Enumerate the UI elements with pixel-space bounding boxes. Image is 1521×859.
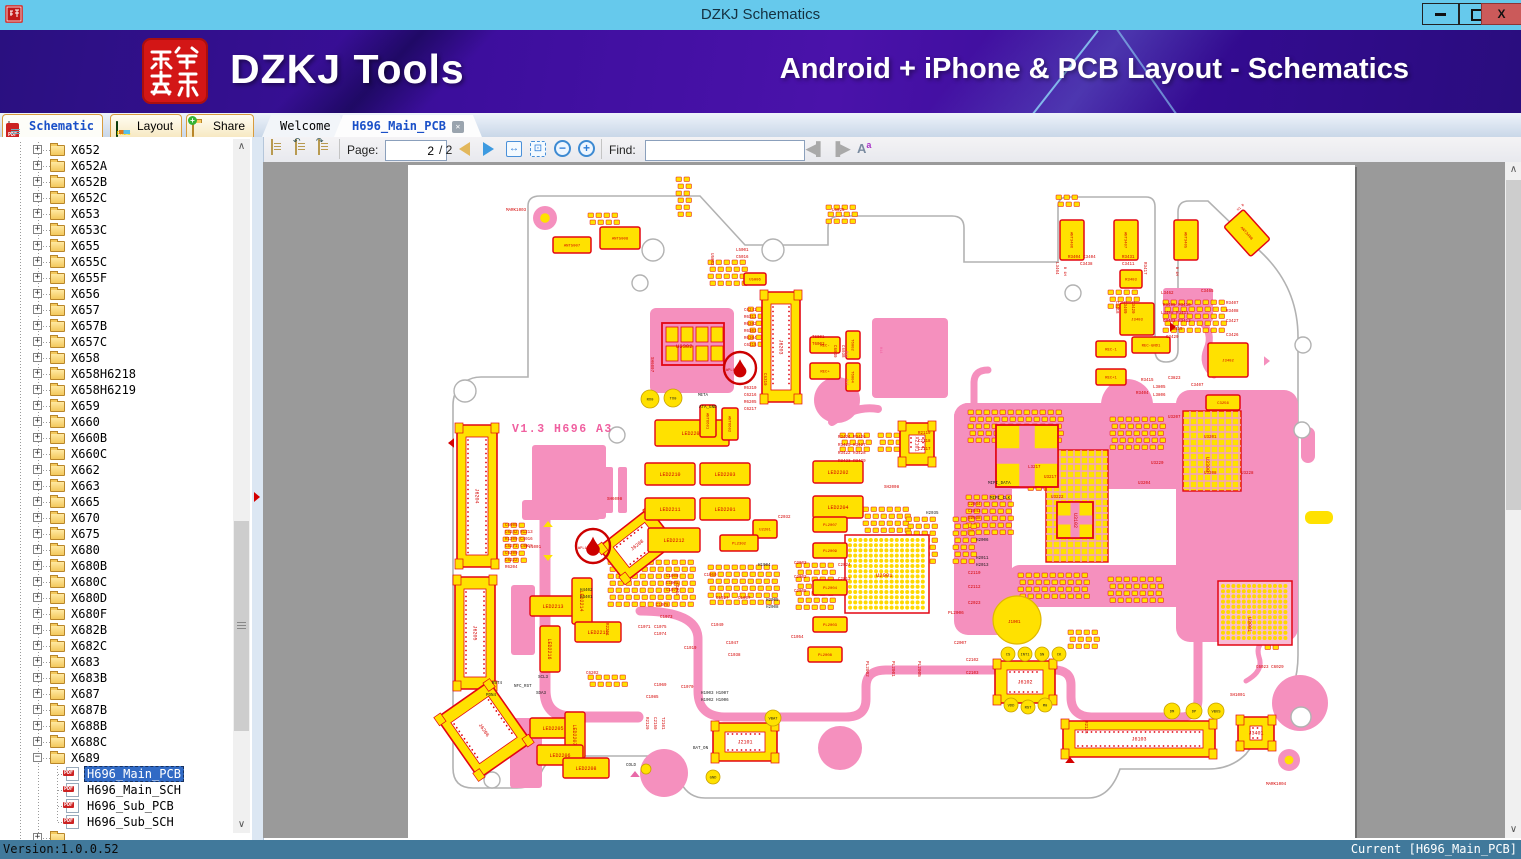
svg-text:U2001: U2001 xyxy=(876,572,893,579)
svg-text:MARK1003: MARK1003 xyxy=(506,209,527,213)
folder-icon xyxy=(50,305,65,316)
sidebar-scrollbar-thumb[interactable] xyxy=(234,521,249,731)
svg-text:INT1: INT1 xyxy=(1020,654,1030,658)
expand-icon[interactable]: + xyxy=(33,273,42,282)
expand-icon[interactable]: + xyxy=(33,241,42,250)
svg-text:MIPI_DATA: MIPI_DATA xyxy=(988,482,1011,486)
expand-icon[interactable]: + xyxy=(33,145,42,154)
svg-text:U3001: U3001 xyxy=(1246,617,1252,632)
svg-text:U5002: U5002 xyxy=(709,253,713,266)
svg-text:C2112: C2112 xyxy=(968,586,981,590)
doc-tab-h696-main-pcb[interactable]: H696_Main_PCB✕ xyxy=(334,115,482,137)
tree-folder-X680C[interactable]: +X680C xyxy=(0,574,232,590)
folder-icon xyxy=(50,609,65,620)
expand-icon[interactable]: + xyxy=(33,833,42,840)
expand-icon[interactable]: + xyxy=(33,513,42,522)
svg-text:CK: CK xyxy=(1057,654,1062,658)
tree-item-label: X670 xyxy=(68,511,103,525)
copy-page-button[interactable] xyxy=(271,140,273,154)
svg-text:H1003 H1007: H1003 H1007 xyxy=(701,692,729,696)
expand-icon[interactable]: + xyxy=(33,177,42,186)
tree-folder-partial[interactable]: + xyxy=(0,830,232,840)
svg-text:R6311: R6311 xyxy=(744,316,757,320)
svg-text:ANT6601: ANT6601 xyxy=(705,413,709,430)
tree-folder-X653C[interactable]: +X653C xyxy=(0,222,232,238)
tree-item-label: X680F xyxy=(68,607,110,621)
tree-folder-X656[interactable]: +X656 xyxy=(0,286,232,302)
folder-icon xyxy=(50,385,65,396)
tab-share[interactable]: Share xyxy=(186,114,254,137)
svg-text:ANT3405: ANT3405 xyxy=(1183,232,1187,249)
expand-icon[interactable]: + xyxy=(33,737,42,746)
page-number-input[interactable] xyxy=(385,140,447,161)
svg-text:C3420: C3420 xyxy=(1130,301,1134,314)
tree-item-label: X655C xyxy=(68,255,110,269)
tree-item-label: X683 xyxy=(68,655,103,669)
expand-icon[interactable]: + xyxy=(33,625,42,634)
svg-text:C2002: C2002 xyxy=(794,576,807,580)
folder-icon xyxy=(50,449,65,460)
svg-text:B 1H: B 1H xyxy=(1062,267,1066,276)
svg-text:C2003: C2003 xyxy=(794,562,807,566)
svg-text:C6023 C6029: C6023 C6029 xyxy=(1256,666,1284,670)
expand-icon[interactable]: + xyxy=(33,353,42,362)
svg-text:C2013: C2013 xyxy=(838,578,851,582)
svg-text:C3407: C3407 xyxy=(1191,384,1204,388)
expand-icon[interactable]: + xyxy=(33,369,42,378)
svg-text:CS: CS xyxy=(1006,654,1011,658)
svg-text:RST: RST xyxy=(1025,707,1033,711)
fit-width-button[interactable]: ↔ xyxy=(506,140,522,157)
tree-item-label: X660 xyxy=(68,415,103,429)
svg-text:U3102: U3102 xyxy=(1072,513,1078,528)
find-input[interactable] xyxy=(645,140,805,161)
svg-text:C6222: C6222 xyxy=(505,559,518,563)
zoom-in-button[interactable]: + xyxy=(578,140,595,157)
schematic-tree-panel: +X652+X652A+X652B+X652C+X653+X653C+X655+… xyxy=(0,137,253,840)
svg-text:C1040: C1040 xyxy=(711,624,724,628)
svg-text:SCL3: SCL3 xyxy=(538,676,549,680)
svg-text:C6202: C6202 xyxy=(586,672,599,676)
tab-layout[interactable]: Layout xyxy=(110,114,182,137)
folder-icon xyxy=(50,465,65,476)
app-window: DZKJ Schematics X DZKJ Tools Android + i… xyxy=(0,0,1521,859)
expand-icon[interactable]: + xyxy=(33,449,42,458)
svg-text:PL2006: PL2006 xyxy=(948,611,964,616)
expand-icon[interactable]: + xyxy=(33,689,42,698)
svg-text:C2007: C2007 xyxy=(954,642,967,646)
pdf-file-icon xyxy=(66,767,79,781)
tree-folder-X683B[interactable]: +X683B xyxy=(0,670,232,686)
tree-folder-X675[interactable]: +X675 xyxy=(0,526,232,542)
zoom-out-button[interactable]: − xyxy=(554,140,571,157)
svg-text:C1077: C1077 xyxy=(666,589,679,593)
tree-item-label: X687B xyxy=(68,703,110,717)
sidebar-scrollbar[interactable]: ∧ ∨ xyxy=(233,139,250,833)
svg-text:LED2216: LED2216 xyxy=(546,638,552,659)
close-button[interactable]: X xyxy=(1481,3,1521,25)
tree-folder-X682C[interactable]: +X682C xyxy=(0,638,232,654)
expand-icon[interactable]: + xyxy=(33,609,42,618)
svg-text:C1007: C1007 xyxy=(738,597,751,601)
tree-folder-X663[interactable]: +X663 xyxy=(0,478,232,494)
svg-text:J6204: J6204 xyxy=(473,488,479,503)
svg-text:C6040: C6040 xyxy=(832,345,836,358)
tree-folder-X657B[interactable]: +X657B xyxy=(0,318,232,334)
svg-text:PL2003: PL2003 xyxy=(823,624,838,628)
tree-folder-X658[interactable]: +X658 xyxy=(0,350,232,366)
tree-folder-X660[interactable]: +X660 xyxy=(0,414,232,430)
svg-text:C2102: C2102 xyxy=(966,659,979,663)
svg-text:C2024: C2024 xyxy=(838,564,851,568)
tree-folder-X653[interactable]: +X653 xyxy=(0,206,232,222)
expand-icon[interactable]: + xyxy=(33,385,42,394)
next-page-button[interactable] xyxy=(483,142,494,159)
tree-folder-X688B[interactable]: +X688B xyxy=(0,718,232,734)
tree-item-label: X653 xyxy=(68,207,103,221)
svg-text:DP: DP xyxy=(1192,711,1197,715)
tree-folder-X665[interactable]: +X665 xyxy=(0,494,232,510)
tree-item-label: X680D xyxy=(68,591,110,605)
tree-folder-X652A[interactable]: +X652A xyxy=(0,158,232,174)
expand-icon[interactable]: + xyxy=(33,705,42,714)
svg-text:LED2201: LED2201 xyxy=(714,507,735,513)
svg-text:H2006: H2006 xyxy=(976,539,989,543)
expand-icon[interactable]: + xyxy=(33,721,42,730)
expand-icon[interactable]: + xyxy=(33,545,42,554)
folder-icon xyxy=(50,561,65,572)
svg-text:META: META xyxy=(698,394,709,398)
previous-page-button[interactable] xyxy=(459,142,470,159)
svg-text:H4402: H4402 xyxy=(580,589,593,593)
match-case-button[interactable]: Aa xyxy=(857,140,871,156)
svg-text:C6241: C6241 xyxy=(744,309,757,313)
tree-item-label: H696_Sub_SCH xyxy=(84,815,177,829)
tree-item-label: X688B xyxy=(68,719,110,733)
tree-file-H696_Main_SCH[interactable]: H696_Main_SCH xyxy=(0,782,232,798)
viewer-scrollbar-thumb[interactable] xyxy=(1506,180,1521,510)
tree-folder-X657C[interactable]: +X657C xyxy=(0,334,232,350)
svg-text:T2101: T2101 xyxy=(660,717,664,730)
svg-text:C1074: C1074 xyxy=(654,633,667,637)
svg-text:H14: H14 xyxy=(844,379,848,385)
svg-text:R3404 C3404: R3404 C3404 xyxy=(1068,256,1096,260)
svg-text:C2117: C2117 xyxy=(918,448,931,452)
tree-folder-X680D[interactable]: +X680D xyxy=(0,590,232,606)
svg-text:C1047: C1047 xyxy=(726,642,739,646)
close-tab-icon[interactable]: ✕ xyxy=(452,121,464,133)
folder-icon xyxy=(50,257,65,268)
svg-text:C2118: C2118 xyxy=(918,440,931,444)
expand-icon[interactable]: + xyxy=(33,193,42,202)
expand-icon[interactable]: + xyxy=(33,321,42,330)
svg-text:B 1H: B 1H xyxy=(1174,267,1178,276)
expand-icon[interactable]: + xyxy=(33,337,42,346)
svg-text:C3426: C3426 xyxy=(1226,334,1239,338)
folder-icon xyxy=(50,753,65,764)
expand-icon[interactable]: + xyxy=(33,225,42,234)
svg-text:J3401: J3401 xyxy=(1248,731,1263,737)
expand-icon[interactable]: + xyxy=(33,481,42,490)
tree-item-label: X657C xyxy=(68,335,110,349)
tree-folder-X655C[interactable]: +X655C xyxy=(0,254,232,270)
svg-text:R3415: R3415 xyxy=(1141,379,1154,383)
tree-item-label: X680B xyxy=(68,559,110,573)
tree-file-H696_Sub_PCB[interactable]: H696_Sub_PCB xyxy=(0,798,232,814)
svg-text:SDA3: SDA3 xyxy=(536,692,547,696)
svg-text:T6001: T6001 xyxy=(812,336,825,340)
tree-folder-X670[interactable]: +X670 xyxy=(0,510,232,526)
scroll-down-icon[interactable]: ∨ xyxy=(233,817,250,833)
folder-icon xyxy=(50,705,65,716)
tree-item-label: H696_Main_PCB xyxy=(84,766,184,782)
svg-text:T6002: T6002 xyxy=(850,339,854,351)
tree-item-label: X658H6219 xyxy=(68,383,139,397)
svg-text:NFC_RST: NFC_RST xyxy=(514,685,532,689)
svg-text:MIPI_CLK: MIPI_CLK xyxy=(990,497,1011,501)
svg-text:SH6007: SH6007 xyxy=(649,357,653,373)
folder-icon xyxy=(50,577,65,588)
expand-icon[interactable]: + xyxy=(33,529,42,538)
svg-text:C2043: C2043 xyxy=(968,510,981,514)
svg-text:C2110: C2110 xyxy=(968,572,981,576)
svg-text:C6310: C6310 xyxy=(762,373,766,386)
tree-folder-X687[interactable]: +X687 xyxy=(0,686,232,702)
tree-item-label: X652B xyxy=(68,175,110,189)
svg-text:C6242 R1213: C6242 R1213 xyxy=(505,531,533,535)
svg-text:C1071: C1071 xyxy=(638,626,651,630)
svg-text:R3407: R3407 xyxy=(1226,302,1239,306)
svg-text:WPL1001: WPL1001 xyxy=(578,547,593,551)
svg-text:C6215: C6215 xyxy=(744,344,757,348)
expand-icon[interactable]: + xyxy=(33,465,42,474)
tree-item-label: X658 xyxy=(68,351,103,365)
tree-item-label: X655 xyxy=(68,239,103,253)
svg-text:R3431: R3431 xyxy=(1122,256,1135,260)
find-previous-button[interactable]: ◀▌ xyxy=(806,141,825,157)
svg-text:U3220: U3220 xyxy=(1151,462,1164,466)
folder-icon xyxy=(50,209,65,220)
svg-text:R6303: R6303 xyxy=(744,330,757,334)
collapse-icon[interactable]: − xyxy=(33,753,42,762)
folder-icon xyxy=(50,225,65,236)
svg-text:U3217: U3217 xyxy=(1044,476,1057,480)
expand-icon[interactable]: + xyxy=(33,641,42,650)
folder-icon xyxy=(50,193,65,204)
svg-text:ANT5008: ANT5008 xyxy=(612,238,629,242)
svg-text:DM: DM xyxy=(1170,711,1175,715)
rotate-right-button[interactable]: ↷ xyxy=(318,140,320,154)
tree-folder-X662[interactable]: +X662 xyxy=(0,462,232,478)
find-next-button[interactable]: ▐▶ xyxy=(831,141,850,157)
svg-text:C3256: C3256 xyxy=(1217,402,1229,406)
svg-text:C6209: C6209 xyxy=(505,552,518,556)
svg-text:C6216: C6216 xyxy=(744,394,757,398)
svg-text:C1085: C1085 xyxy=(646,696,659,700)
svg-text:PL2004: PL2004 xyxy=(823,587,838,591)
svg-text:U3201: U3201 xyxy=(1204,436,1217,440)
svg-text:R3405 R3410: R3405 R3410 xyxy=(1163,304,1191,308)
svg-text:U2201: U2201 xyxy=(759,529,771,533)
svg-text:R3404: R3404 xyxy=(1136,392,1149,396)
expand-icon[interactable]: + xyxy=(33,433,42,442)
tab-schematic[interactable]: Schematic xyxy=(2,114,103,137)
svg-text:R6302: R6302 xyxy=(744,323,757,327)
svg-text:C3429: C3429 xyxy=(1166,336,1179,340)
fit-page-button[interactable]: ⊡ xyxy=(530,140,546,157)
tree-folder-X658H6218[interactable]: +X658H6218 xyxy=(0,366,232,382)
svg-text:R3422 R3428: R3422 R3428 xyxy=(838,452,866,456)
tree-folder-X660C[interactable]: +X660C xyxy=(0,446,232,462)
version-label: Version:1.0.0.52 xyxy=(3,842,119,856)
viewer-scrollbar[interactable]: ∧ ∨ xyxy=(1505,162,1521,838)
tree-folder-X657[interactable]: +X657 xyxy=(0,302,232,318)
svg-text:SH6008: SH6008 xyxy=(607,498,623,502)
svg-text:LED2203: LED2203 xyxy=(714,472,735,478)
tree-folder-X687B[interactable]: +X687B xyxy=(0,702,232,718)
folder-icon xyxy=(50,161,65,172)
svg-text:REC-GND1: REC-GND1 xyxy=(1142,345,1161,349)
expand-icon[interactable]: + xyxy=(33,257,42,266)
collapse-arrow-icon xyxy=(254,492,260,502)
expand-icon[interactable]: + xyxy=(33,593,42,602)
tree-folder-X652C[interactable]: +X652C xyxy=(0,190,232,206)
app-banner: DZKJ Tools Android + iPhone & PCB Layout… xyxy=(0,30,1521,113)
expand-icon[interactable]: + xyxy=(33,161,42,170)
svg-text:R6205: R6205 xyxy=(744,401,757,405)
expand-icon[interactable]: + xyxy=(33,401,42,410)
svg-text:C6038: C6038 xyxy=(840,345,844,358)
tree-folder-X655F[interactable]: +X655F xyxy=(0,270,232,286)
pdf-viewer-canvas[interactable]: J6204J6205J6206J6203J6208J6103J2101J6102… xyxy=(263,162,1505,838)
svg-text:R3408: R3408 xyxy=(1226,310,1239,314)
tree-item-label: X688C xyxy=(68,735,110,749)
dzkj-logo-icon xyxy=(142,38,208,104)
expand-icon[interactable]: + xyxy=(33,561,42,570)
tree-folder-X689[interactable]: −X689 xyxy=(0,750,232,766)
svg-text:LED2210: LED2210 xyxy=(659,472,680,478)
expand-icon[interactable]: + xyxy=(33,305,42,314)
tree-folder-X680F[interactable]: +X680F xyxy=(0,606,232,622)
svg-text:C3823: C3823 xyxy=(1168,377,1181,381)
tree-folder-X652[interactable]: +X652 xyxy=(0,142,232,158)
tree-item-label: X655F xyxy=(68,271,110,285)
tree-folder-X652B[interactable]: +X652B xyxy=(0,174,232,190)
svg-text:U3300: U3300 xyxy=(1204,457,1210,472)
tree-folder-X682B[interactable]: +X682B xyxy=(0,622,232,638)
tree-item-label: X660C xyxy=(68,447,110,461)
svg-text:C2044: C2044 xyxy=(968,503,981,507)
rotate-left-button[interactable]: ↶ xyxy=(295,140,297,154)
svg-text:GND: GND xyxy=(710,777,718,781)
svg-text:C1073: C1073 xyxy=(660,616,673,620)
pdf-file-icon xyxy=(66,815,79,829)
tree-item-label: X660B xyxy=(68,431,110,445)
folder-icon xyxy=(50,593,65,604)
tree-folder-X658H6219[interactable]: +X658H6219 xyxy=(0,382,232,398)
expand-icon[interactable]: + xyxy=(33,673,42,682)
tree-folder-X680[interactable]: +X680 xyxy=(0,542,232,558)
folder-icon xyxy=(50,497,65,508)
brand-title: DZKJ Tools xyxy=(230,46,465,93)
pcb-connector-J6205: J6205 xyxy=(453,575,497,691)
svg-text:U6302: U6302 xyxy=(676,343,693,350)
svg-text:H2005: H2005 xyxy=(766,599,779,603)
expand-icon[interactable]: + xyxy=(33,289,42,298)
svg-text:U3207: U3207 xyxy=(1168,416,1181,420)
tree-folder-X659[interactable]: +X659 xyxy=(0,398,232,414)
folder-icon xyxy=(50,433,65,444)
svg-text:J6103: J6103 xyxy=(1131,737,1146,743)
svg-text:L5025: L5025 xyxy=(832,209,845,213)
minimize-button[interactable] xyxy=(1422,3,1459,25)
svg-text:C1054: C1054 xyxy=(791,636,804,640)
folder-icon xyxy=(50,417,65,428)
svg-text:R6310: R6310 xyxy=(744,387,757,391)
svg-text:C6605: C6605 xyxy=(505,524,518,528)
svg-text:T6003: T6003 xyxy=(812,343,825,347)
current-file-label: Current [H696_Main_PCB] xyxy=(1351,842,1517,856)
tree-item-label: X675 xyxy=(68,527,103,541)
tree-item-label: X663 xyxy=(68,479,103,493)
folder-icon xyxy=(50,369,65,380)
page-total-label: / 2 xyxy=(439,143,452,157)
svg-text:C3427: C3427 xyxy=(1226,320,1239,324)
pcb-drawing: J6204J6205J6206J6203J6208J6103J2101J6102… xyxy=(408,165,1355,838)
svg-text:PL2005: PL2005 xyxy=(916,661,921,677)
scroll-up-icon[interactable]: ∧ xyxy=(1505,162,1521,178)
scroll-up-icon[interactable]: ∧ xyxy=(233,139,250,155)
tree-folder-X683[interactable]: +X683 xyxy=(0,654,232,670)
svg-text:C3418: C3418 xyxy=(1114,301,1118,314)
svg-text:L3806: L3806 xyxy=(1153,394,1166,398)
pads-icon xyxy=(116,118,133,134)
svg-text:C1008: C1008 xyxy=(666,575,679,579)
pcb-connector-J2101: J2101 xyxy=(711,721,779,763)
tree-folder-X655[interactable]: +X655 xyxy=(0,238,232,254)
svg-text:LED2208: LED2208 xyxy=(575,766,596,772)
svg-text:C1060: C1060 xyxy=(704,574,717,578)
pdf-file-icon xyxy=(66,799,79,813)
svg-text:T6004: T6004 xyxy=(850,371,854,383)
svg-text:VBUS: VBUS xyxy=(1211,711,1221,715)
tree-file-H696_Main_PCB[interactable]: H696_Main_PCB xyxy=(0,766,232,782)
expand-icon[interactable]: + xyxy=(33,209,42,218)
tree-folder-X688C[interactable]: +X688C xyxy=(0,734,232,750)
folder-icon xyxy=(50,657,65,668)
svg-text:VDD: VDD xyxy=(1008,705,1016,709)
svg-text:H4401: H4401 xyxy=(580,596,593,600)
svg-text:U5006: U5006 xyxy=(749,279,761,283)
svg-text:R2123: R2123 xyxy=(1083,721,1087,734)
expand-icon[interactable]: + xyxy=(33,497,42,506)
svg-text:R6204: R6204 xyxy=(505,566,518,570)
folder-tree: +X652+X652A+X652B+X652C+X653+X653C+X655+… xyxy=(0,137,232,840)
svg-text:H2011: H2011 xyxy=(976,557,989,561)
scroll-down-icon[interactable]: ∨ xyxy=(1505,822,1521,838)
tree-folder-X660B[interactable]: +X660B xyxy=(0,430,232,446)
tree-item-label: H696_Main_SCH xyxy=(84,783,184,797)
expand-icon[interactable]: + xyxy=(33,417,42,426)
svg-text:M0: M0 xyxy=(1043,705,1048,709)
svg-text:C2032: C2032 xyxy=(778,516,791,520)
svg-text:C3411: C3411 xyxy=(1122,263,1135,267)
tree-file-H696_Sub_SCH[interactable]: H696_Sub_SCH xyxy=(0,814,232,830)
svg-text:LED2205: LED2205 xyxy=(542,726,563,732)
tree-folder-X680B[interactable]: +X680B xyxy=(0,558,232,574)
expand-icon[interactable]: + xyxy=(33,577,42,586)
expand-icon[interactable]: + xyxy=(33,657,42,666)
